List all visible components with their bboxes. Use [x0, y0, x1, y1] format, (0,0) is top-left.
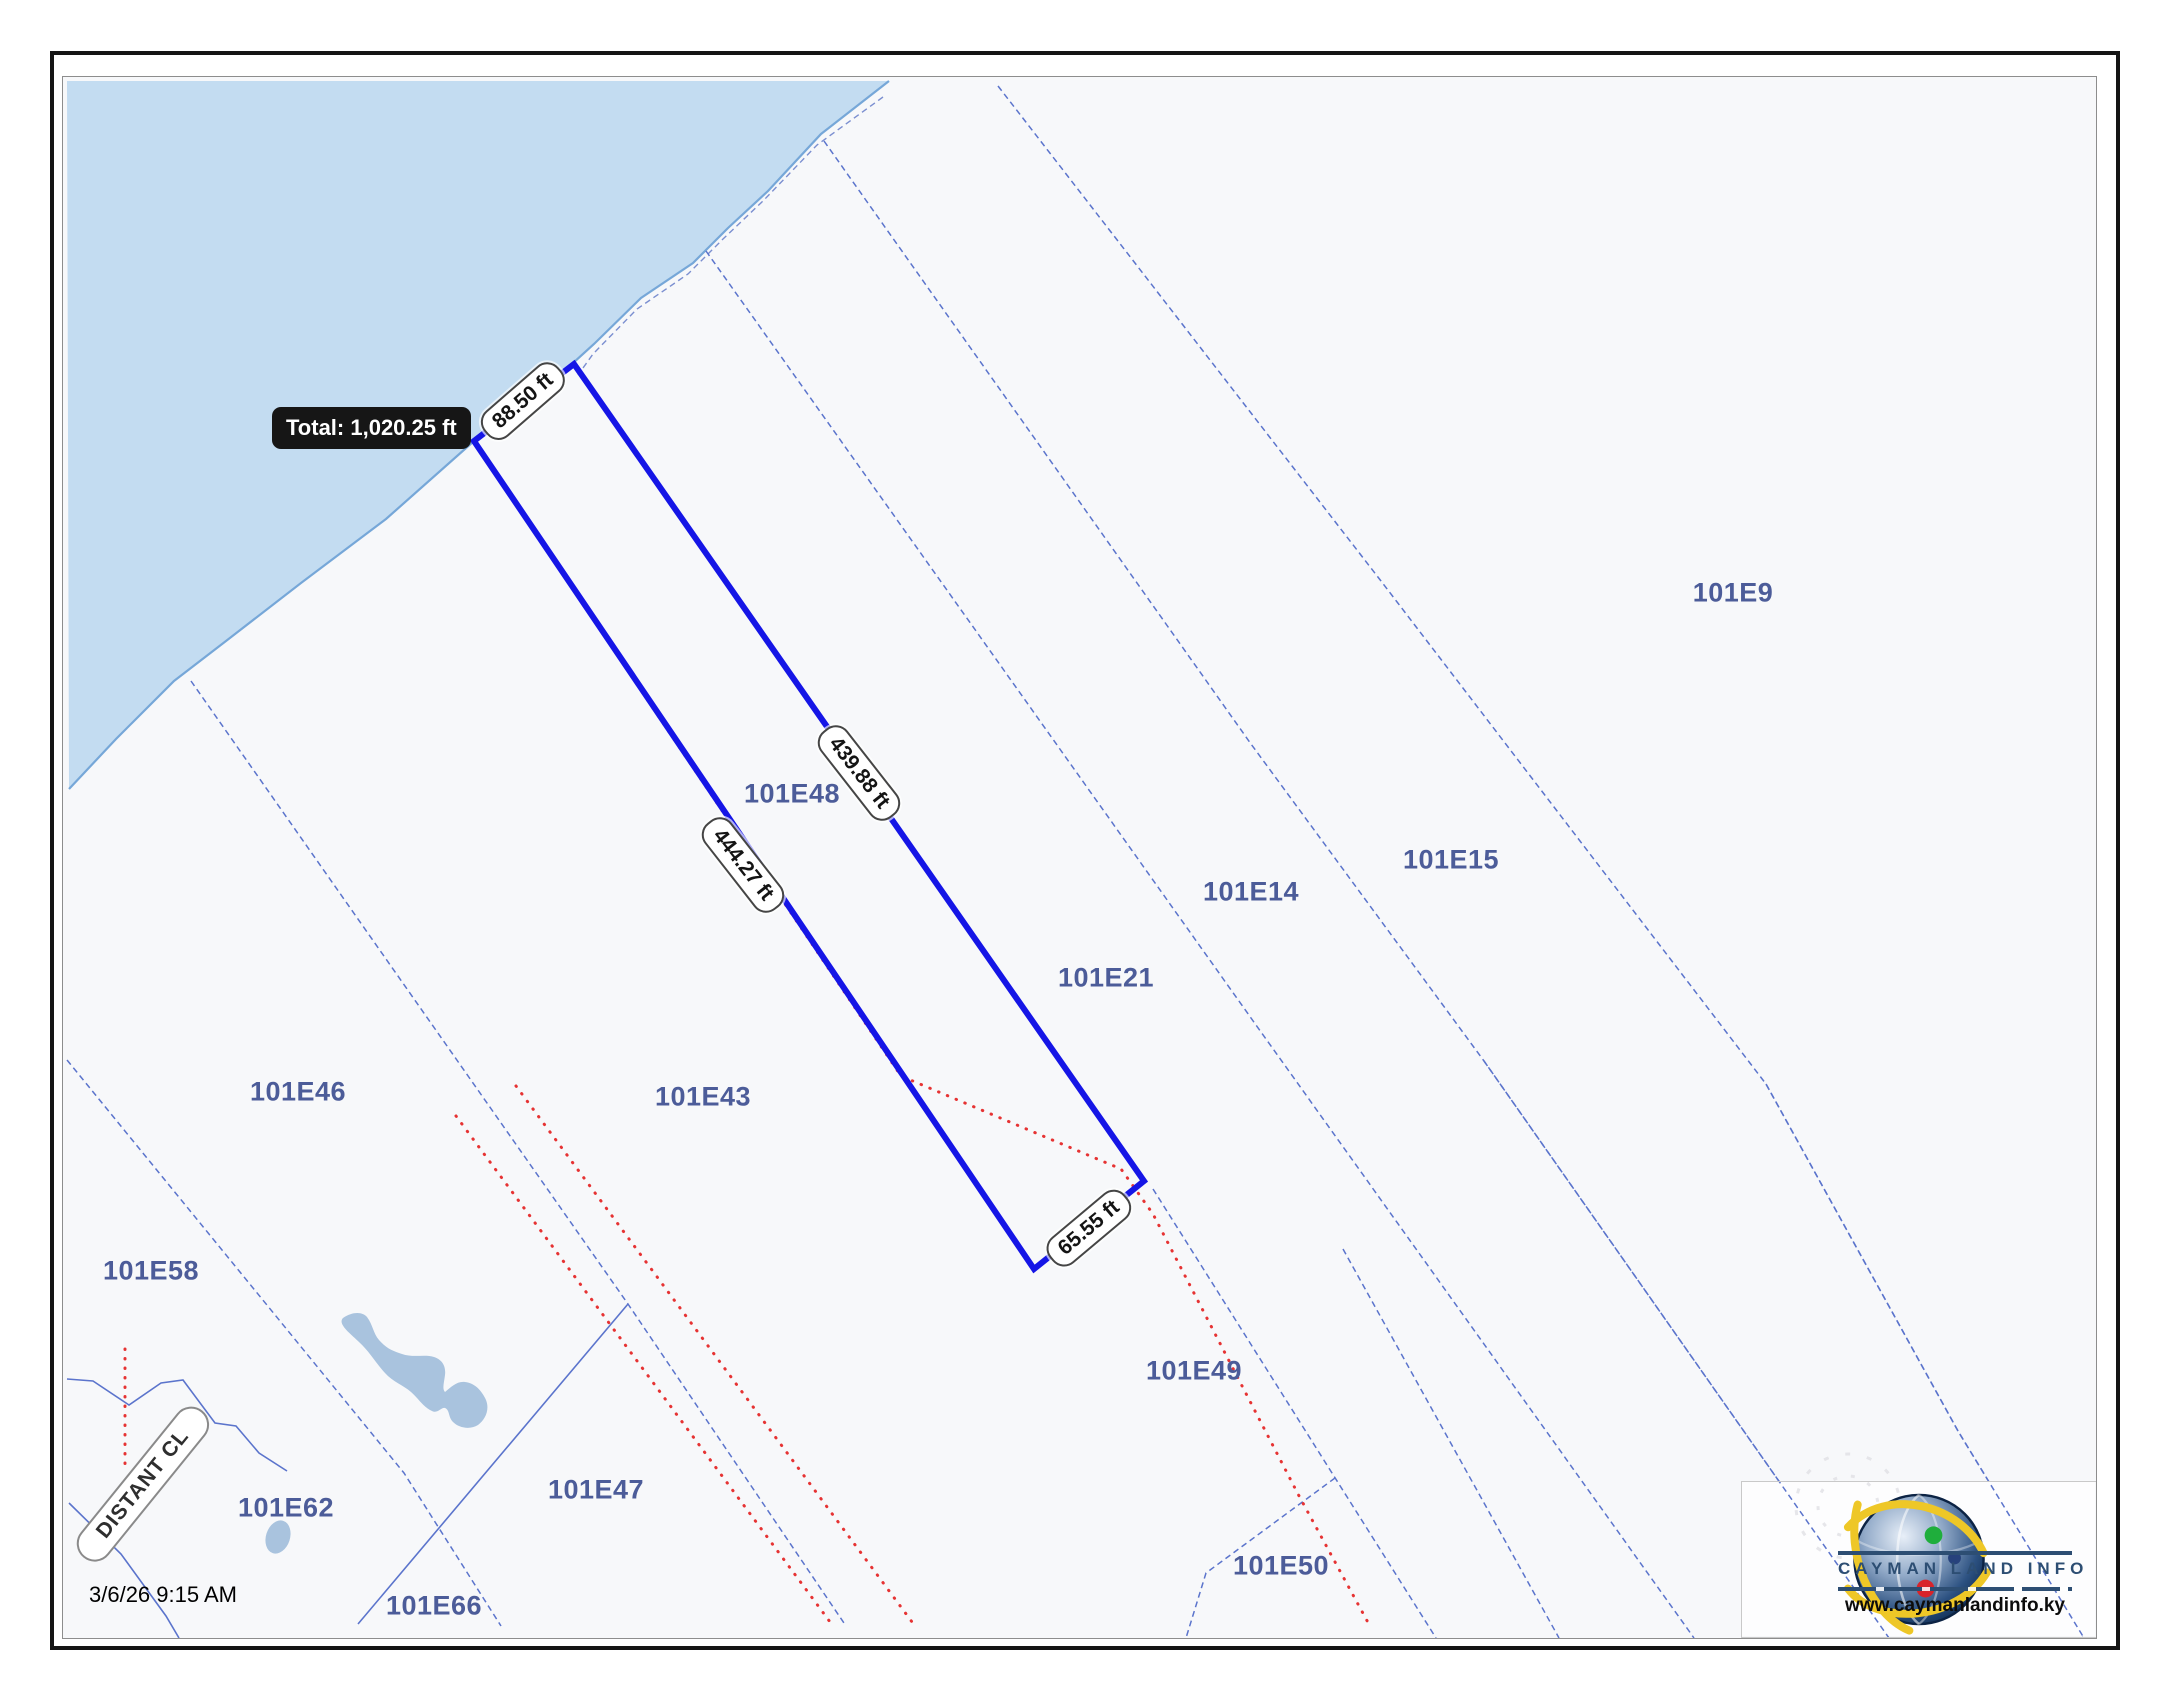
map-drawing [63, 77, 2096, 1638]
parcel-label-101E15: 101E15 [1403, 845, 1499, 876]
cayman-land-info-map-view: 101E9 101E15 101E14 101E21 101E48 101E43… [0, 0, 2168, 1700]
cayman-land-info-logo: CAYMAN LAND INFO www.caymanlandinfo.ky [1741, 1481, 2097, 1638]
parcel-label-101E46: 101E46 [250, 1077, 346, 1108]
parcel-label-101E58: 101E58 [103, 1256, 199, 1287]
parcel-label-101E50: 101E50 [1233, 1551, 1329, 1582]
brand-name: CAYMAN LAND INFO [1838, 1559, 2072, 1579]
parcel-label-101E47: 101E47 [548, 1475, 644, 1506]
brand-website-link[interactable]: www.caymanlandinfo.ky [1838, 1595, 2072, 1617]
parcel-label-101E43: 101E43 [655, 1082, 751, 1113]
parcel-label-101E21: 101E21 [1058, 963, 1154, 994]
parcel-label-101E48: 101E48 [744, 779, 840, 810]
brand-rule-bottom [1838, 1587, 2072, 1591]
parcel-label-101E14: 101E14 [1203, 877, 1299, 908]
parcel-label-101E49: 101E49 [1146, 1356, 1242, 1387]
parcel-label-101E66: 101E66 [386, 1591, 482, 1622]
survey-red-lines [125, 456, 1371, 1628]
parcel-label-101E9: 101E9 [1693, 578, 1774, 609]
parcel-label-101E62: 101E62 [238, 1493, 334, 1524]
map-canvas[interactable]: 101E9 101E15 101E14 101E21 101E48 101E43… [62, 76, 2097, 1639]
pond [342, 1313, 488, 1428]
map-timestamp: 3/6/26 9:15 AM [89, 1582, 237, 1608]
selected-parcel-outline[interactable] [474, 364, 1144, 1269]
brand-rule-top [1838, 1551, 2072, 1555]
measurement-total-tooltip: Total: 1,020.25 ft [272, 407, 471, 449]
